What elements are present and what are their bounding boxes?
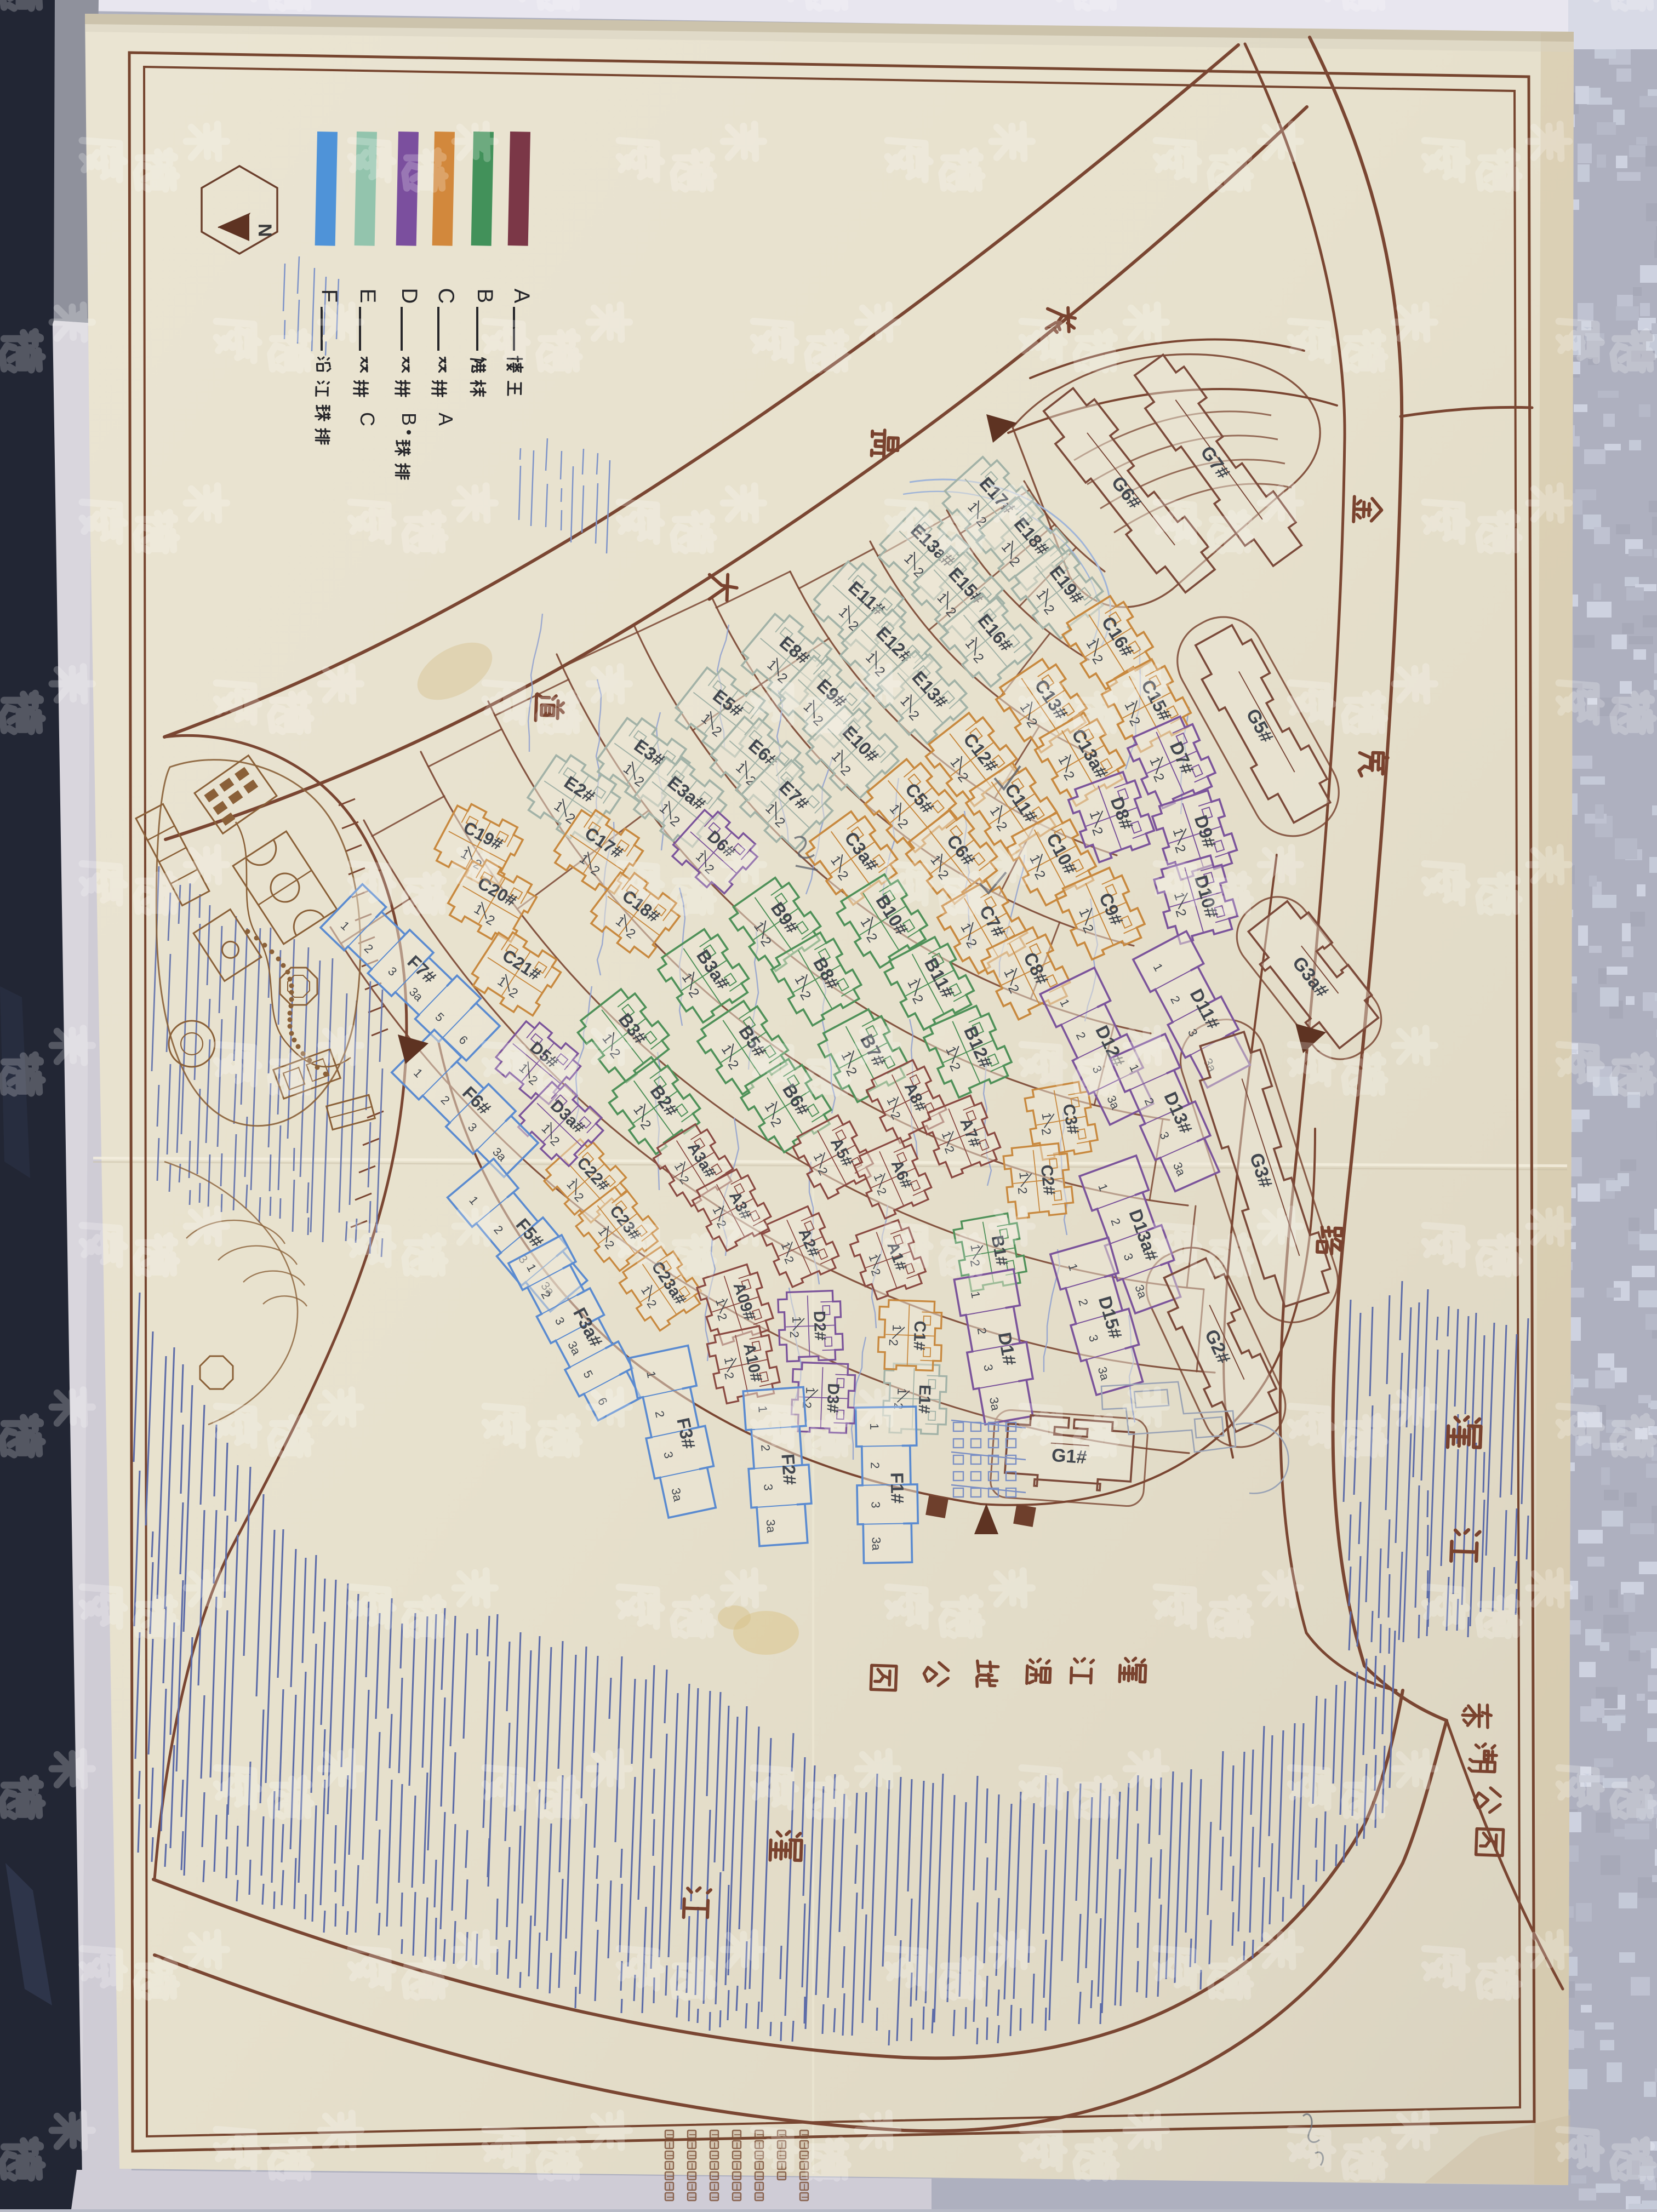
- svg-text:G1#: G1#: [1051, 1445, 1088, 1468]
- svg-text:3: 3: [761, 1483, 775, 1491]
- svg-text:1: 1: [895, 1388, 909, 1395]
- svg-text:F: F: [317, 289, 341, 302]
- svg-text:C: C: [356, 412, 379, 426]
- svg-text:3a: 3a: [987, 1396, 1003, 1412]
- svg-text:1: 1: [803, 1387, 817, 1394]
- svg-text:E: E: [356, 289, 380, 304]
- svg-text:D2#: D2#: [810, 1311, 829, 1341]
- svg-text:C1#: C1#: [910, 1321, 929, 1351]
- svg-text:B: B: [473, 289, 497, 304]
- svg-text:N: N: [254, 224, 275, 237]
- svg-text:F1#: F1#: [887, 1472, 908, 1504]
- svg-text:2: 2: [1015, 1186, 1030, 1194]
- svg-text:1: 1: [1016, 1171, 1031, 1179]
- svg-text:E1#: E1#: [915, 1385, 934, 1414]
- svg-text:3a: 3a: [870, 1537, 883, 1551]
- svg-text:1: 1: [890, 1324, 904, 1331]
- svg-text:D: D: [397, 288, 421, 304]
- svg-text:2: 2: [758, 1444, 773, 1452]
- svg-text:3a: 3a: [764, 1519, 779, 1534]
- svg-text:2: 2: [868, 1462, 882, 1469]
- svg-text:C2#: C2#: [1037, 1164, 1059, 1196]
- svg-text:3: 3: [869, 1501, 883, 1508]
- svg-text:A: A: [435, 413, 457, 426]
- svg-text:C: C: [434, 288, 458, 304]
- svg-text:D3#: D3#: [823, 1383, 842, 1414]
- svg-text:B: B: [398, 413, 420, 426]
- svg-text:A: A: [510, 289, 534, 304]
- svg-text:2: 2: [887, 1339, 900, 1346]
- svg-text:1: 1: [790, 1316, 803, 1323]
- svg-text:2: 2: [787, 1331, 801, 1338]
- svg-text:F2#: F2#: [778, 1453, 800, 1485]
